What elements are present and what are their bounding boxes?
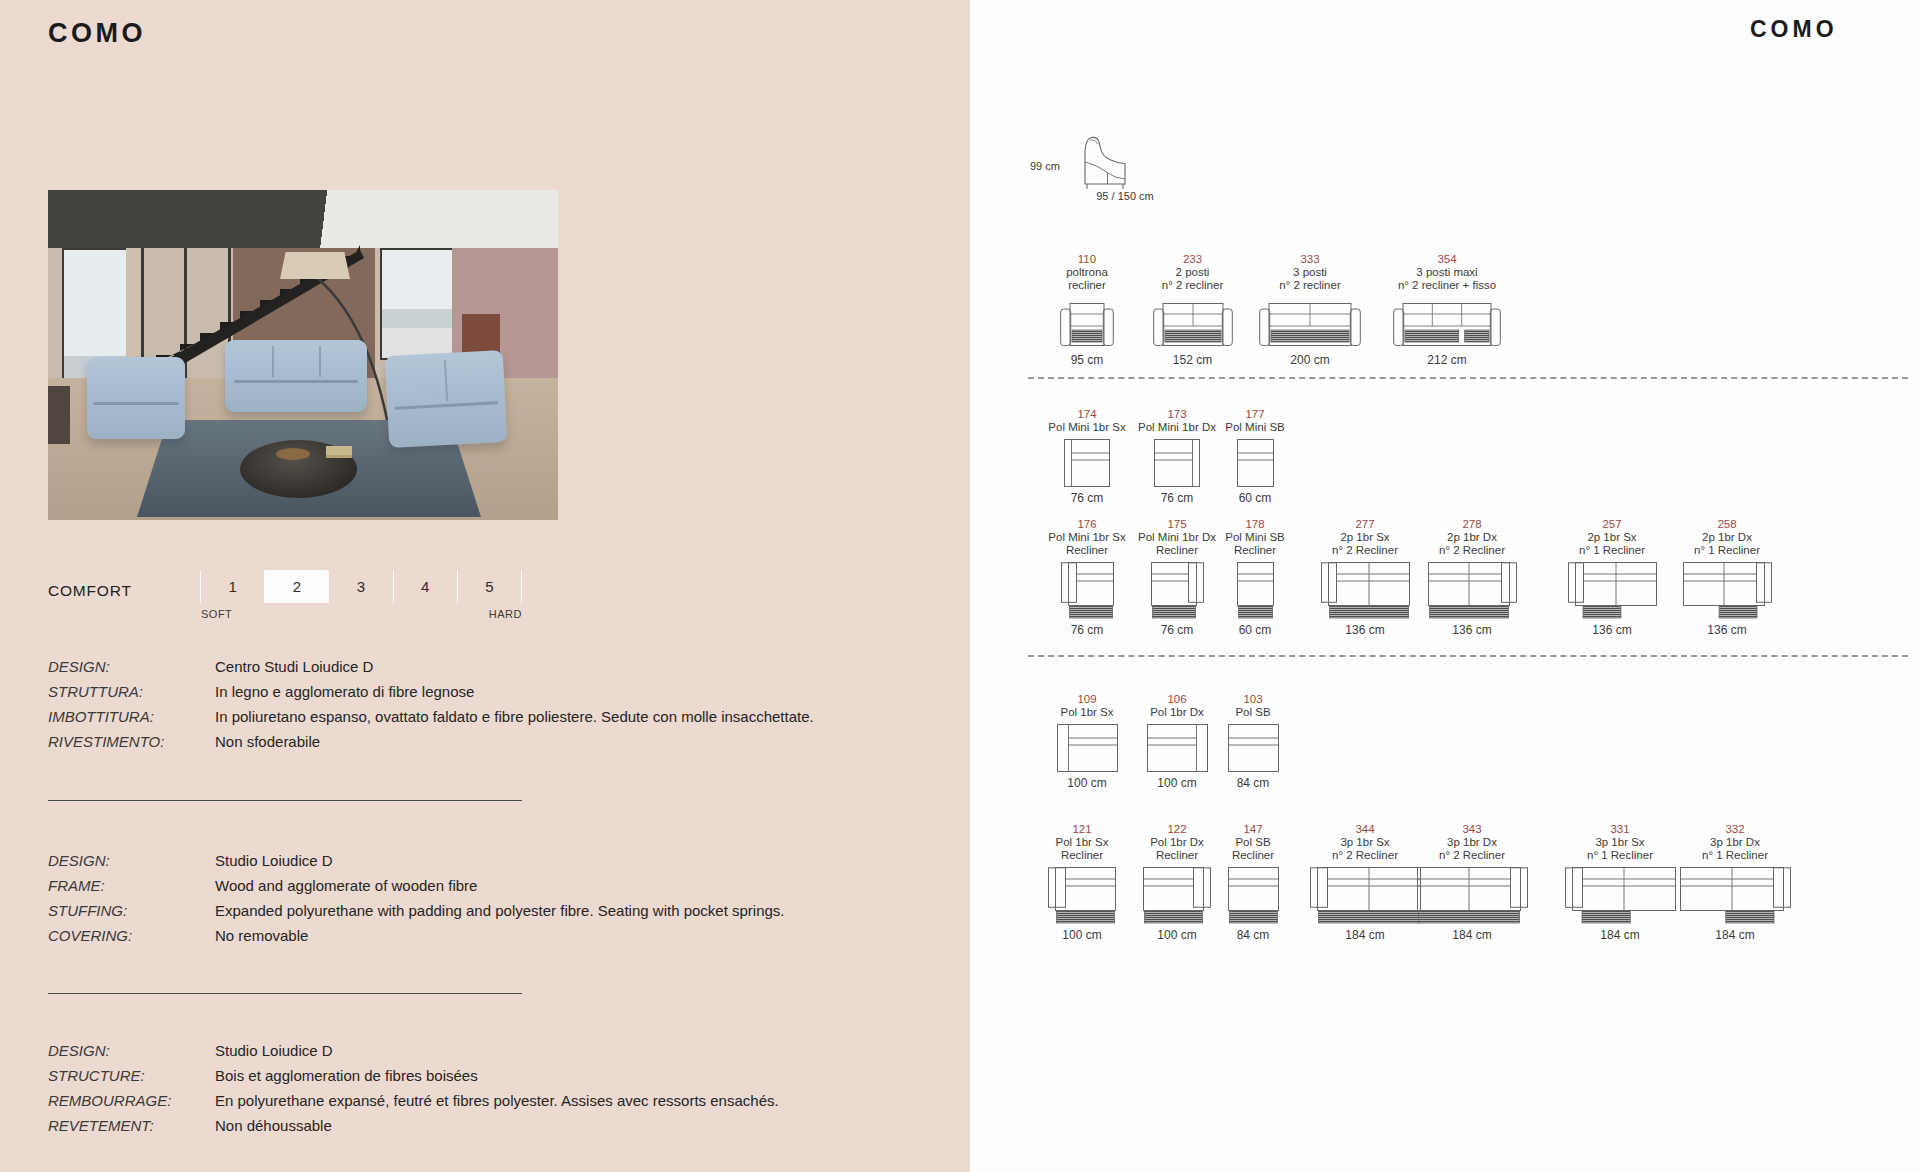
module-cell: 110poltronarecliner95 cm (1037, 252, 1137, 367)
divider-rule (48, 800, 522, 801)
module-drawing (1228, 724, 1279, 772)
product-photo (48, 190, 558, 520)
module-name: Pol 1br Dx (1150, 706, 1204, 719)
spec-label: DESIGN: (48, 658, 215, 675)
spec-block-french: DESIGN:Studio Loiudice DSTRUCTURE:Bois e… (48, 1042, 908, 1142)
module-name: 2p 1br Dx (1694, 531, 1760, 544)
module-code: 173 (1167, 407, 1186, 421)
module-drawing (1154, 439, 1200, 487)
spec-label: DESIGN: (48, 852, 215, 869)
module-code: 121 (1072, 822, 1091, 836)
module-figure (1428, 562, 1517, 619)
spec-label: REMBOURRAGE: (48, 1092, 215, 1109)
module-name: Pol Mini 1br Sx (1048, 531, 1125, 544)
module-name-block: 2p 1br Dxn° 1 Recliner (1694, 531, 1760, 557)
dashed-separator (1028, 377, 1908, 379)
spec-block-english: DESIGN:Studio Loiudice DFRAME:Wood and a… (48, 852, 908, 952)
comfort-level-5: 5 (457, 570, 522, 603)
spec-label: IMBOTTITURA: (48, 708, 215, 725)
module-figure (1259, 297, 1361, 349)
module-name-block: Pol 1br Dx (1150, 706, 1204, 719)
module-name-block: 3p 1br Dxn° 2 Recliner (1439, 836, 1505, 862)
module-name: n° 2 recliner (1162, 279, 1224, 292)
side-view-height-label: 99 cm (1030, 160, 1060, 172)
module-figure (1057, 724, 1118, 772)
spec-value: Non déhoussable (215, 1117, 332, 1134)
module-cell: 2332 postin° 2 recliner152 cm (1140, 252, 1245, 367)
comfort-level-2: 2 (264, 570, 328, 603)
module-code: 277 (1355, 517, 1374, 531)
module-dimension: 136 cm (1592, 623, 1631, 637)
module-drawing (1680, 867, 1791, 924)
module-name: Recliner (1225, 544, 1284, 557)
module-figure (1310, 867, 1421, 924)
module-name: poltrona (1066, 266, 1108, 279)
module-name: n° 1 Recliner (1579, 544, 1645, 557)
module-dimension: 136 cm (1707, 623, 1746, 637)
module-code: 178 (1245, 517, 1264, 531)
module-figure (1565, 867, 1676, 924)
side-view: 99 cm 95 / 150 cm (1030, 128, 1210, 218)
module-code: 176 (1077, 517, 1096, 531)
module-dimension: 95 cm (1071, 353, 1104, 367)
module-dimension: 100 cm (1067, 776, 1106, 790)
module-name-block: 2p 1br Sxn° 1 Recliner (1579, 531, 1645, 557)
module-dimension: 76 cm (1161, 491, 1194, 505)
module-name-block: Pol 1br DxRecliner (1150, 836, 1204, 862)
module-name: 3p 1br Dx (1702, 836, 1768, 849)
spec-value: Expanded polyurethane with padding and p… (215, 902, 785, 919)
module-cell: 3543 posti maxin° 2 recliner + fisso212 … (1367, 252, 1527, 367)
module-dimension: 60 cm (1239, 623, 1272, 637)
module-figure (1417, 867, 1528, 924)
module-drawing (1061, 562, 1114, 619)
module-dimension: 200 cm (1290, 353, 1329, 367)
module-dimension: 84 cm (1237, 776, 1270, 790)
module-figure (1147, 724, 1208, 772)
module-code: 177 (1245, 407, 1264, 421)
module-code: 333 (1300, 252, 1319, 266)
photo-books (326, 446, 352, 455)
module-code: 257 (1602, 517, 1621, 531)
spec-value: Wood and agglomerate of wooden fibre (215, 877, 477, 894)
spec-value: Studio Loiudice D (215, 852, 333, 869)
module-figure (1237, 562, 1274, 619)
module-name: n° 1 Recliner (1702, 849, 1768, 862)
module-code: 110 (1078, 252, 1096, 266)
module-name-block: Pol SBRecliner (1232, 836, 1274, 862)
module-figure (1680, 867, 1791, 924)
module-name-block: Pol Mini SBRecliner (1225, 531, 1284, 557)
module-name: Pol 1br Sx (1060, 706, 1113, 719)
module-name: n° 2 Recliner (1332, 849, 1398, 862)
module-name: Pol 1br Dx (1150, 836, 1204, 849)
spec-row: DESIGN:Centro Studi Loiudice D (48, 658, 908, 683)
module-name: 2p 1br Sx (1332, 531, 1398, 544)
module-name: 2p 1br Sx (1579, 531, 1645, 544)
spec-row: STRUTTURA:In legno e agglomerato di fibr… (48, 683, 908, 708)
module-figure (1060, 297, 1114, 349)
spec-value: In legno e agglomerato di fibre legnose (215, 683, 474, 700)
module-name-block: 3p 1br Sxn° 2 Recliner (1332, 836, 1398, 862)
module-code: 258 (1717, 517, 1736, 531)
spec-row: REMBOURRAGE:En polyurethane expansé, feu… (48, 1092, 908, 1117)
module-drawing (1417, 867, 1528, 924)
module-name-block: 3p 1br Sxn° 1 Recliner (1587, 836, 1653, 862)
module-dimension: 184 cm (1715, 928, 1754, 942)
module-name: Pol Mini SB (1225, 421, 1284, 434)
module-cell: 3323p 1br Dxn° 1 Recliner184 cm (1685, 822, 1785, 942)
comfort-level-1: 1 (200, 570, 264, 603)
page-title: COMO (48, 18, 146, 49)
module-name-block: poltronarecliner (1066, 266, 1108, 292)
module-drawing (1237, 439, 1274, 487)
module-figure (1228, 724, 1279, 772)
module-cell: 3443p 1br Sxn° 2 Recliner184 cm (1315, 822, 1415, 942)
module-name-block: Pol 1br SxRecliner (1055, 836, 1108, 862)
module-cell: 3313p 1br Sxn° 1 Recliner184 cm (1570, 822, 1670, 942)
module-cell: 177Pol Mini SB60 cm (1205, 407, 1305, 505)
module-drawing (1428, 562, 1517, 619)
module-code: 103 (1243, 692, 1262, 706)
spec-value: Bois et agglomeration de fibres boisées (215, 1067, 478, 1084)
module-figure (1151, 562, 1204, 619)
module-figure (1393, 297, 1501, 349)
photo-loveseat (385, 350, 508, 448)
module-dimension: 152 cm (1173, 353, 1212, 367)
spec-label: STRUTTURA: (48, 683, 215, 700)
module-name: Pol Mini SB (1225, 531, 1284, 544)
comfort-soft-label: SOFT (201, 608, 232, 620)
module-name: 3p 1br Sx (1587, 836, 1653, 849)
module-figure (1143, 867, 1211, 924)
module-dimension: 84 cm (1237, 928, 1270, 942)
module-code: 174 (1077, 407, 1096, 421)
module-name: Pol 1br Sx (1055, 836, 1108, 849)
module-drawing (1228, 867, 1279, 924)
module-dimension: 184 cm (1345, 928, 1384, 942)
module-name: n° 2 recliner (1279, 279, 1341, 292)
module-dimension: 184 cm (1600, 928, 1639, 942)
module-name: 3p 1br Dx (1439, 836, 1505, 849)
module-name: Recliner (1232, 849, 1274, 862)
module-name-block: 2p 1br Sxn° 2 Recliner (1332, 531, 1398, 557)
module-drawing (1057, 724, 1118, 772)
module-name-block: 3p 1br Dxn° 1 Recliner (1702, 836, 1768, 862)
spec-value: Centro Studi Loiudice D (215, 658, 373, 675)
module-cell: 103Pol SB84 cm (1203, 692, 1303, 790)
module-dimension: 76 cm (1071, 623, 1104, 637)
module-code: 278 (1462, 517, 1481, 531)
photo-armchair (87, 357, 185, 439)
module-code: 354 (1437, 252, 1456, 266)
module-drawing (1393, 297, 1501, 349)
module-code: 344 (1355, 822, 1374, 836)
spec-label: DESIGN: (48, 1042, 215, 1059)
module-name-block: Pol SB (1235, 706, 1270, 719)
comfort-hard-label: HARD (448, 608, 522, 620)
module-cell: 2582p 1br Dxn° 1 Recliner136 cm (1677, 517, 1777, 637)
module-dimension: 76 cm (1071, 491, 1104, 505)
comfort-scale: 12345 (200, 570, 522, 603)
module-cell: 3333 postin° 2 recliner200 cm (1255, 252, 1365, 367)
module-dimension: 136 cm (1345, 623, 1384, 637)
module-name: Pol Mini 1br Sx (1048, 421, 1125, 434)
spec-value: En polyurethane expansé, feutré et fibre… (215, 1092, 779, 1109)
module-cell: 121Pol 1br SxRecliner100 cm (1032, 822, 1132, 942)
module-figure (1321, 562, 1410, 619)
module-drawing (1060, 297, 1114, 349)
module-name: recliner (1066, 279, 1108, 292)
spec-row: IMBOTTITURA:In poliuretano espanso, ovat… (48, 708, 908, 733)
module-code: 106 (1167, 692, 1186, 706)
spec-label: REVETEMENT: (48, 1117, 215, 1134)
module-code: 175 (1167, 517, 1186, 531)
module-drawing (1151, 562, 1204, 619)
spec-block-italian: DESIGN:Centro Studi Loiudice DSTRUTTURA:… (48, 658, 908, 758)
spec-label: COVERING: (48, 927, 215, 944)
spec-row: RIVESTIMENTO:Non sfoderabile (48, 733, 908, 758)
module-code: 147 (1243, 822, 1262, 836)
divider-rule (48, 993, 522, 994)
module-name-block: 3 postin° 2 recliner (1279, 266, 1341, 292)
module-code: 332 (1725, 822, 1744, 836)
spec-value: Studio Loiudice D (215, 1042, 333, 1059)
module-cell: 109Pol 1br Sx100 cm (1037, 692, 1137, 790)
page-title-right: COMO (1750, 16, 1838, 43)
spec-label: STRUCTURE: (48, 1067, 215, 1084)
module-cell: 3433p 1br Dxn° 2 Recliner184 cm (1422, 822, 1522, 942)
module-code: 109 (1077, 692, 1096, 706)
module-dimension: 212 cm (1427, 353, 1466, 367)
spec-value: No removable (215, 927, 308, 944)
module-name: n° 2 Recliner (1332, 544, 1398, 557)
module-drawing (1064, 439, 1110, 487)
module-code: 233 (1183, 252, 1202, 266)
module-figure (1153, 297, 1233, 349)
module-name: n° 2 recliner + fisso (1398, 279, 1496, 292)
comfort-level-4: 4 (393, 570, 457, 603)
spec-row: COVERING:No removable (48, 927, 908, 952)
module-dimension: 136 cm (1452, 623, 1491, 637)
module-name: Recliner (1055, 849, 1108, 862)
spec-row: DESIGN:Studio Loiudice D (48, 1042, 908, 1067)
photo-lamp-shade (280, 252, 350, 279)
module-figure (1228, 867, 1279, 924)
module-cell: 147Pol SBRecliner84 cm (1203, 822, 1303, 942)
module-drawing (1147, 724, 1208, 772)
module-name: n° 2 Recliner (1439, 849, 1505, 862)
module-cell: 2782p 1br Dxn° 2 Recliner136 cm (1422, 517, 1522, 637)
module-figure (1568, 562, 1657, 619)
module-name: Recliner (1150, 849, 1204, 862)
photo-sofa (225, 340, 367, 412)
spec-row: STUFFING:Expanded polyurethane with padd… (48, 902, 908, 927)
module-name: 3 posti maxi (1398, 266, 1496, 279)
module-name: 2p 1br Dx (1439, 531, 1505, 544)
photo-tray (276, 448, 310, 460)
module-drawing (1259, 297, 1361, 349)
module-dimension: 184 cm (1452, 928, 1491, 942)
module-name-block: Pol 1br Sx (1060, 706, 1113, 719)
module-dimension: 60 cm (1239, 491, 1272, 505)
module-code: 343 (1462, 822, 1481, 836)
module-name-block: Pol Mini 1br Sx (1048, 421, 1125, 434)
comfort-label: COMFORT (48, 582, 132, 600)
module-dimension: 100 cm (1157, 928, 1196, 942)
module-figure (1048, 867, 1116, 924)
spec-row: FRAME:Wood and agglomerate of wooden fib… (48, 877, 908, 902)
module-name: Pol SB (1232, 836, 1274, 849)
module-name-block: 3 posti maxin° 2 recliner + fisso (1398, 266, 1496, 292)
module-name: Pol SB (1235, 706, 1270, 719)
module-drawing (1153, 297, 1233, 349)
module-name: n° 2 Recliner (1439, 544, 1505, 557)
spec-row: STRUCTURE:Bois et agglomeration de fibre… (48, 1067, 908, 1092)
module-code: 122 (1167, 822, 1186, 836)
left-page: COMO COMFORT 12345 SOFT HARD (0, 0, 970, 1172)
module-figure (1061, 562, 1114, 619)
spec-row: DESIGN:Studio Loiudice D (48, 852, 908, 877)
spec-label: STUFFING: (48, 902, 215, 919)
module-name: Recliner (1048, 544, 1125, 557)
module-dimension: 100 cm (1062, 928, 1101, 942)
module-cell: 176Pol Mini 1br SxRecliner76 cm (1037, 517, 1137, 637)
module-name: n° 1 Recliner (1694, 544, 1760, 557)
side-view-depth-label: 95 / 150 cm (1070, 190, 1180, 202)
module-name: n° 1 Recliner (1587, 849, 1653, 862)
spec-value: In poliuretano espanso, ovattato faldato… (215, 708, 814, 725)
spec-row: REVETEMENT:Non déhoussable (48, 1117, 908, 1142)
module-code: 331 (1610, 822, 1629, 836)
module-name: 3 posti (1279, 266, 1341, 279)
module-figure (1683, 562, 1772, 619)
module-figure (1064, 439, 1110, 487)
module-cell: 174Pol Mini 1br Sx76 cm (1037, 407, 1137, 505)
dashed-separator (1028, 655, 1908, 657)
module-drawing (1143, 867, 1211, 924)
spec-value: Non sfoderabile (215, 733, 320, 750)
module-name: 3p 1br Sx (1332, 836, 1398, 849)
module-figure (1154, 439, 1200, 487)
module-name-block: Pol Mini 1br SxRecliner (1048, 531, 1125, 557)
module-drawing (1237, 562, 1274, 619)
module-drawing (1565, 867, 1676, 924)
module-drawing (1321, 562, 1410, 619)
side-view-drawing (1074, 132, 1132, 190)
module-name-block: 2 postin° 2 recliner (1162, 266, 1224, 292)
module-cell: 2772p 1br Sxn° 2 Recliner136 cm (1315, 517, 1415, 637)
module-name: 2 posti (1162, 266, 1224, 279)
comfort-level-3: 3 (328, 570, 392, 603)
right-page: COMO 99 cm 95 / 150 cm 110poltronareclin… (970, 0, 1920, 1172)
module-dimension: 100 cm (1157, 776, 1196, 790)
module-drawing (1683, 562, 1772, 619)
module-drawing (1048, 867, 1116, 924)
module-dimension: 76 cm (1161, 623, 1194, 637)
module-cell: 2572p 1br Sxn° 1 Recliner136 cm (1562, 517, 1662, 637)
spec-label: FRAME: (48, 877, 215, 894)
module-figure (1237, 439, 1274, 487)
spec-label: RIVESTIMENTO: (48, 733, 215, 750)
module-drawing (1310, 867, 1421, 924)
module-drawing (1568, 562, 1657, 619)
module-name-block: Pol Mini SB (1225, 421, 1284, 434)
module-cell: 178Pol Mini SBRecliner60 cm (1205, 517, 1305, 637)
module-name-block: 2p 1br Dxn° 2 Recliner (1439, 531, 1505, 557)
